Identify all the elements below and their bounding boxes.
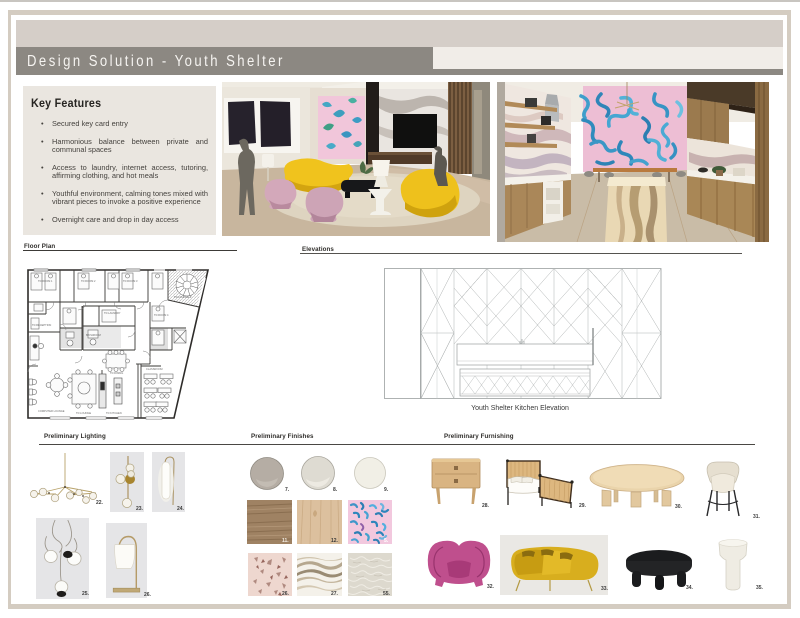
svg-text:TD LOUNGE: TD LOUNGE — [76, 411, 91, 415]
svg-text:TD RECEPTION: TD RECEPTION — [32, 323, 51, 327]
svg-text:TD DINING: TD DINING — [110, 371, 123, 375]
svg-text:COMPUTER LOUNGE: COMPUTER LOUNGE — [38, 409, 65, 413]
svg-text:TD LAUNDRY: TD LAUNDRY — [104, 311, 121, 315]
svg-text:TD ROOM 4: TD ROOM 4 — [154, 313, 169, 317]
svg-text:TD ROOM 2: TD ROOM 2 — [81, 279, 96, 283]
svg-text:TD ROOM 1: TD ROOM 1 — [38, 279, 53, 283]
svg-text:BATHROOM: BATHROOM — [86, 333, 101, 337]
svg-text:TD KITCHEN: TD KITCHEN — [106, 411, 122, 415]
svg-text:TD ROOM 3: TD ROOM 3 — [123, 279, 138, 283]
svg-text:TD LOUNGE 2: TD LOUNGE 2 — [174, 295, 192, 299]
svg-text:CLASSROOM: CLASSROOM — [146, 367, 163, 371]
